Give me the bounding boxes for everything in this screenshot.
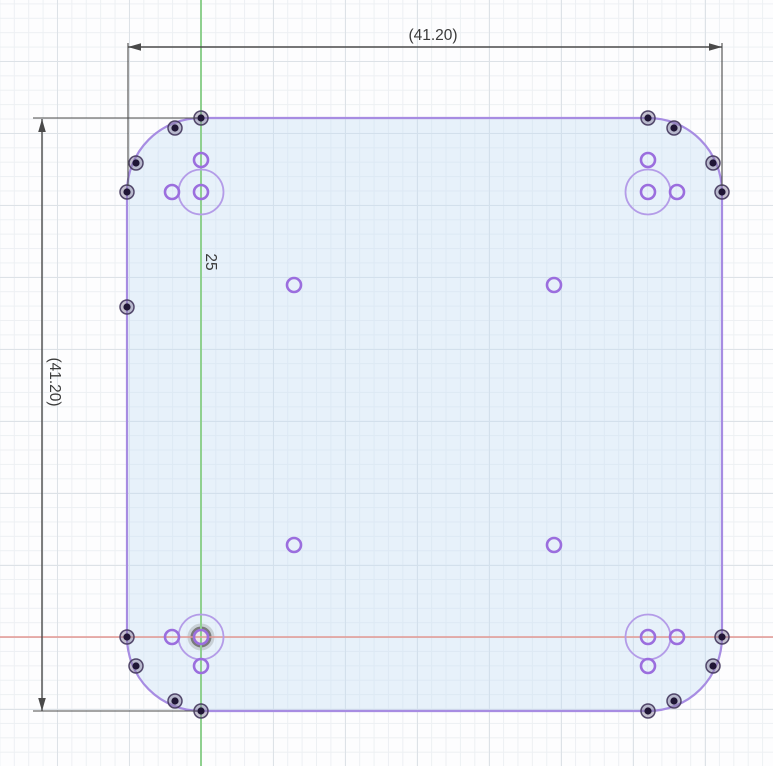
- sketch-point-core: [171, 124, 178, 131]
- sketch-point-core: [123, 303, 130, 310]
- dim-offset-value[interactable]: 25: [202, 253, 219, 270]
- sketch-viewport[interactable]: (41.20) (41.20) 25: [0, 0, 773, 766]
- sketch-point-core: [197, 707, 204, 714]
- sketch-point-core: [171, 697, 178, 704]
- dim-height-arrow-top: [38, 119, 46, 132]
- sketch-point-core: [123, 633, 130, 640]
- sketch-point-core: [132, 662, 139, 669]
- sketch-point-core: [709, 662, 716, 669]
- sketch-point-core: [123, 188, 130, 195]
- sketch-point-core: [718, 188, 725, 195]
- sketch-point-core: [197, 114, 204, 121]
- sketch-point-core: [670, 124, 677, 131]
- dim-width-arrow-left: [128, 43, 141, 51]
- sketch-point-core: [670, 697, 677, 704]
- dim-width-value[interactable]: (41.20): [408, 27, 457, 44]
- sketch-canvas[interactable]: (41.20) (41.20) 25: [0, 0, 773, 766]
- dim-width-arrow-right: [709, 43, 722, 51]
- dim-height-arrow-bottom: [38, 698, 46, 711]
- sketch-point-core: [132, 159, 139, 166]
- sketch-point-core: [718, 633, 725, 640]
- sketch-point-core: [709, 159, 716, 166]
- sketch-point-core: [644, 707, 651, 714]
- sketch-point-core: [644, 114, 651, 121]
- dim-height-value[interactable]: (41.20): [46, 357, 63, 406]
- plate-face[interactable]: [127, 118, 722, 711]
